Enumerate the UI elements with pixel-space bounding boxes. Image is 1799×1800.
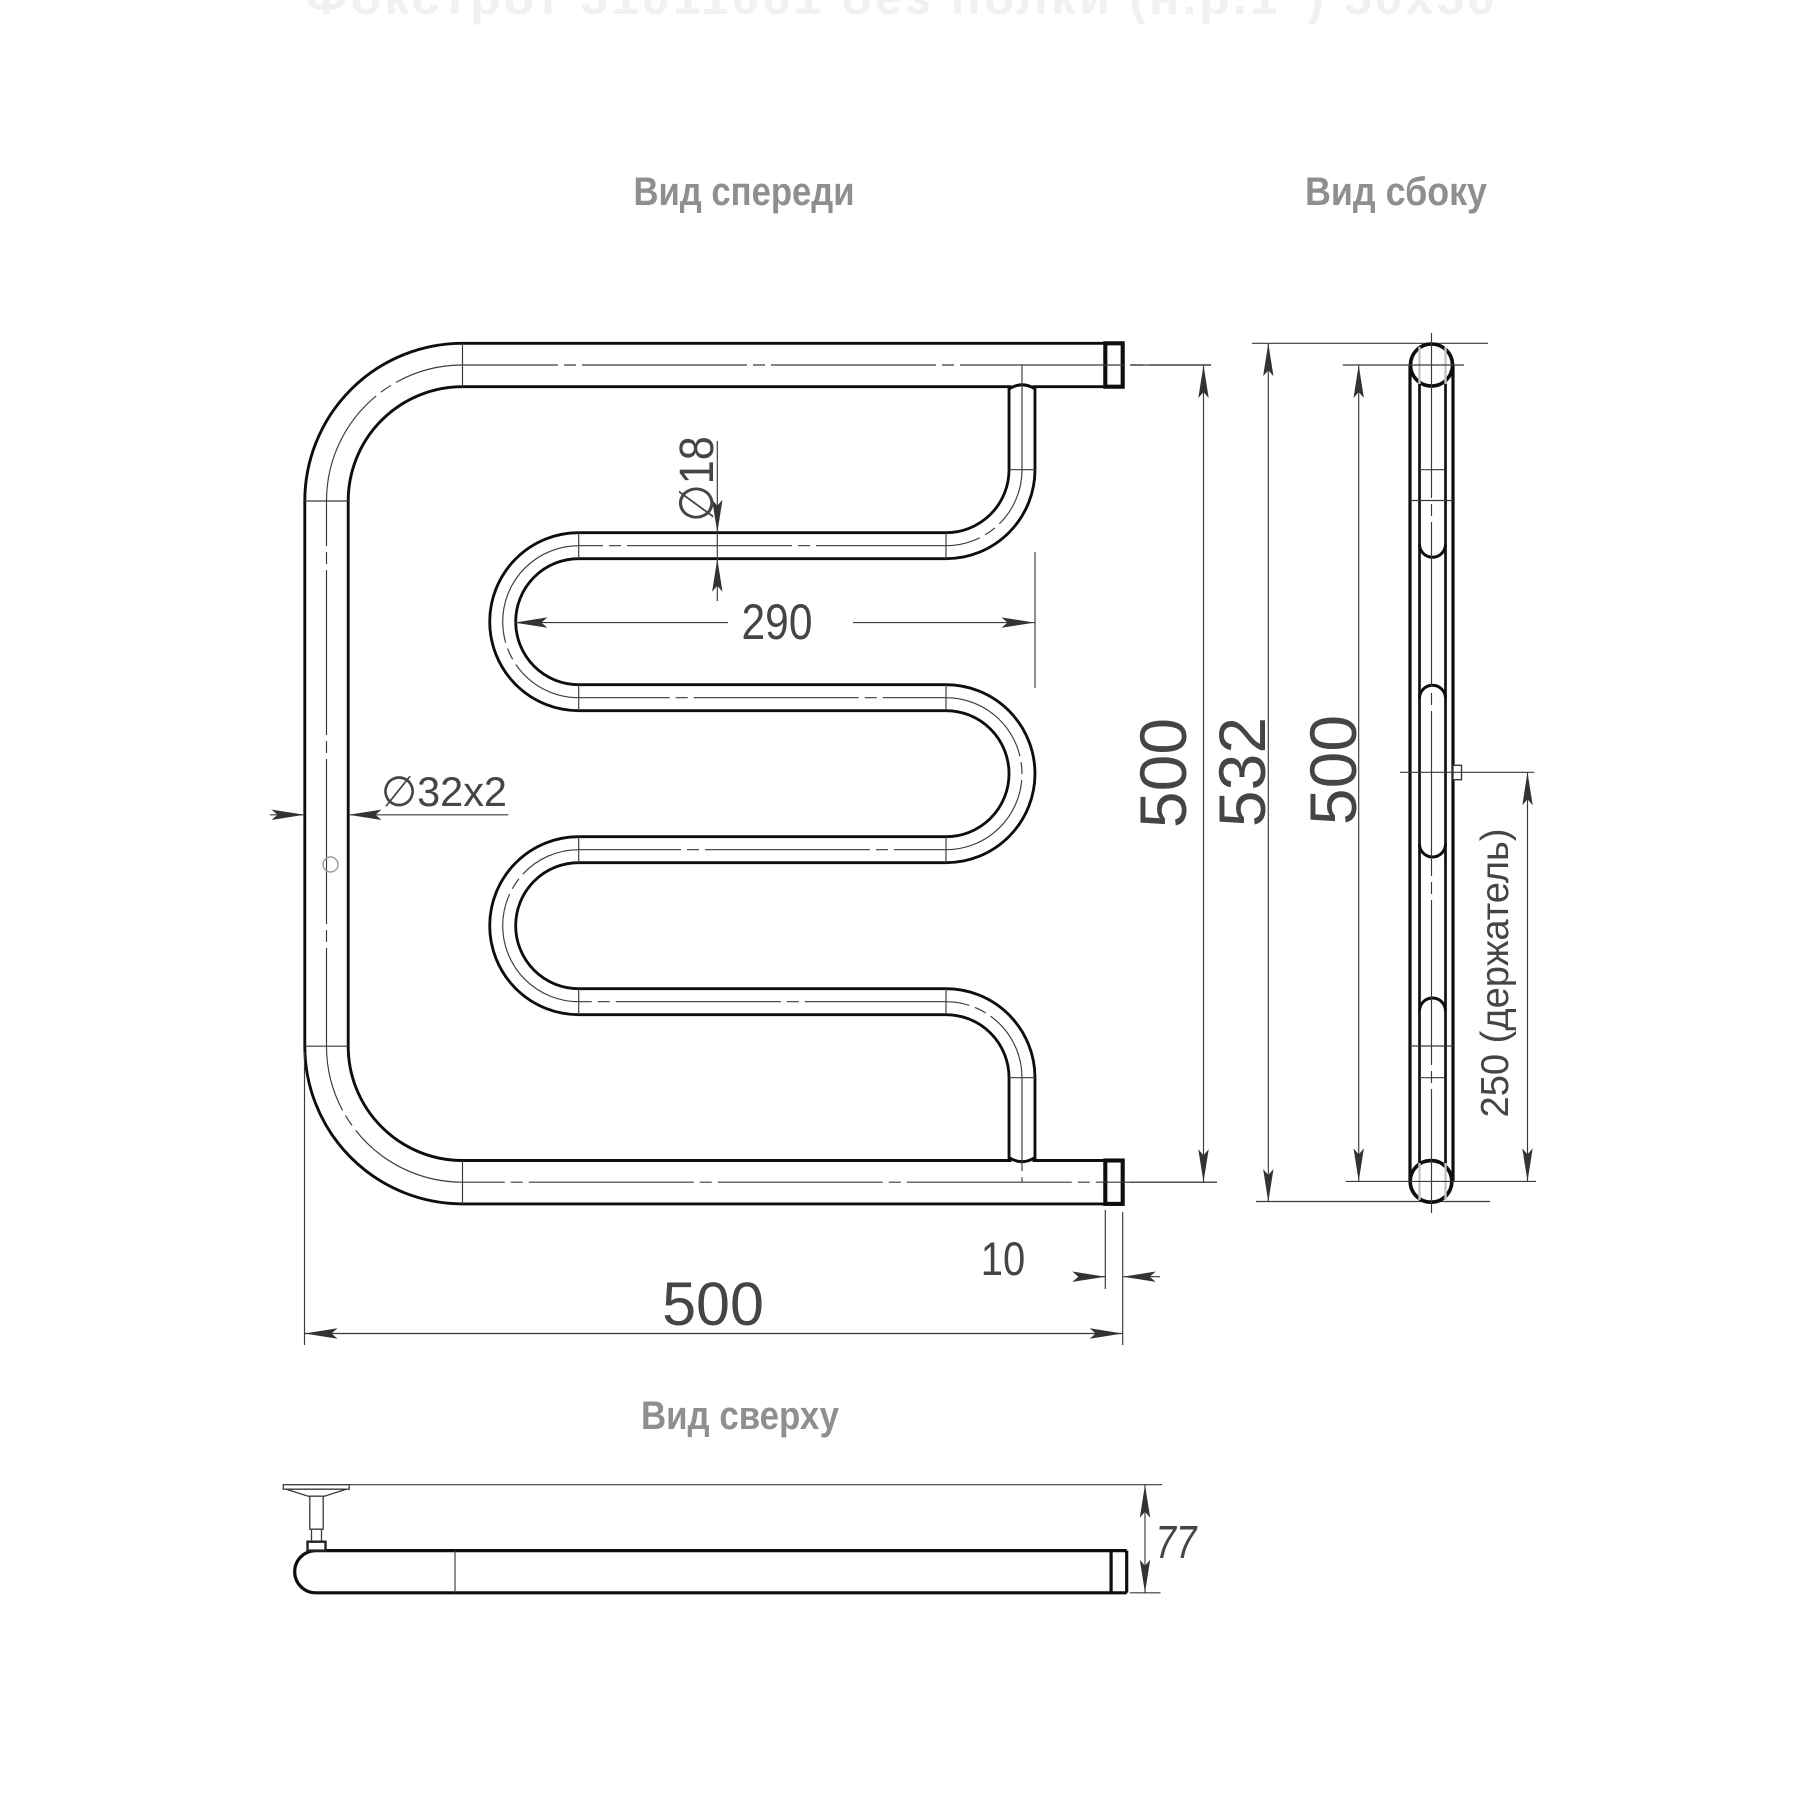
svg-text:500: 500 — [662, 1270, 764, 1338]
svg-text:∅18: ∅18 — [670, 436, 724, 522]
svg-text:290: 290 — [742, 594, 813, 650]
svg-text:250 (держатель): 250 (держатель) — [1474, 829, 1517, 1118]
svg-text:77: 77 — [1156, 1516, 1199, 1568]
svg-text:Фокстрот 31011061 без полки (н: Фокстрот 31011061 без полки (н.р.1") 50х… — [305, 0, 1495, 25]
svg-text:500: 500 — [1126, 718, 1200, 828]
svg-text:Вид спереди: Вид спереди — [634, 170, 855, 214]
svg-text:Вид сбоку: Вид сбоку — [1305, 170, 1488, 214]
svg-text:Вид сверху: Вид сверху — [641, 1394, 840, 1438]
svg-text:10: 10 — [981, 1234, 1025, 1286]
svg-text:532: 532 — [1205, 717, 1279, 827]
svg-text:500: 500 — [1296, 715, 1370, 825]
svg-text:∅32x2: ∅32x2 — [381, 768, 507, 815]
